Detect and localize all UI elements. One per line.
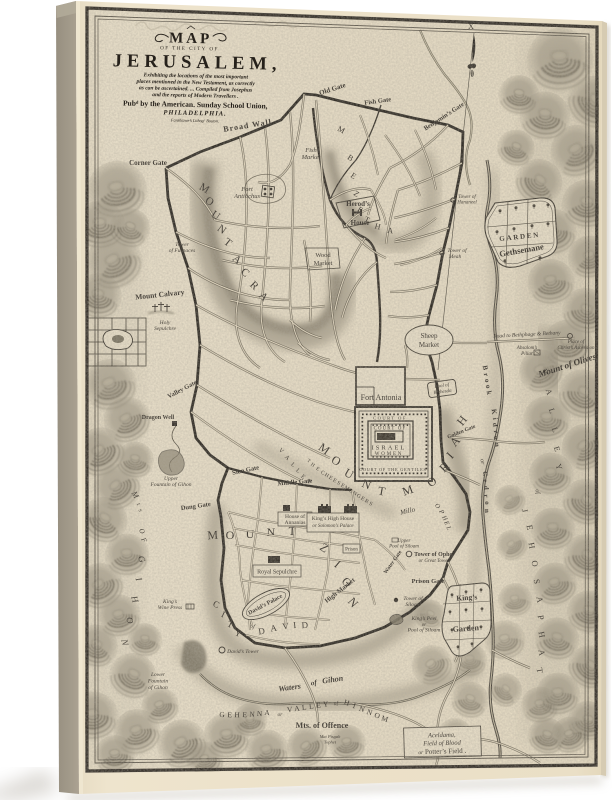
svg-text:MAP: MAP: [169, 30, 212, 47]
svg-text:JERUSALEM,: JERUSALEM,: [113, 51, 282, 75]
svg-text:Fanshtawe’s Lithogʻ Boston.: Fanshtawe’s Lithogʻ Boston.: [170, 117, 219, 123]
svg-text:PHILADELPHIA.: PHILADELPHIA.: [163, 109, 227, 117]
